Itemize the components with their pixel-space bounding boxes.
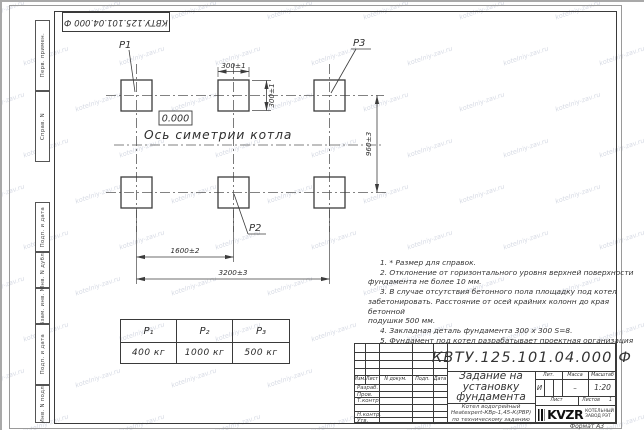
pad-label-p3: P3 [353,38,365,49]
title-block: Изм. Лист N докум. Подп. Дата Разраб. Пр… [354,343,616,423]
pad-label-p2: P2 [249,223,261,234]
tb-designation: КВТУ.125.101.04.000 Ф [447,344,617,371]
tb-sheets-value: 1 [604,396,617,405]
pad-label-p1: P1 [119,40,131,51]
note-line: подушки 500 мм. [368,316,638,326]
logo-subtext: КОТЕЛЬНЫЙ ЗАВОД РЭТ [585,410,614,420]
load-table: P₁ P₂ P₃ 400 кг 1000 кг 500 кг [120,319,290,364]
tb-doc-subtitle: Котел водогрейный Heatexpert-КВр-1,45-К(… [447,403,535,424]
dim-col-spacing: 1600±2 [171,246,200,255]
tb-scale-value: 1:20 [588,379,617,396]
symmetry-axis-label: Ось симетрии котла [144,128,292,142]
load-table-header: P₃ [233,320,289,343]
dim-row-spacing: 960±3 [364,131,373,156]
tb-row-prov: Пров. [357,392,373,398]
tb-row-razrab: Разраб. [357,385,378,391]
note-line: 2. Отклонение от горизонтального уровня … [368,268,638,278]
tb-lit-value: И [535,379,544,396]
elevation-value: 0.000 [162,114,189,125]
extension-lines [137,67,330,284]
note-line: 4. Закладная деталь фундамента 300 х 300… [368,326,638,336]
tb-mass-header: Масса [562,371,588,379]
note-line: 3. В случае отсутствия бетонного пола пл… [368,287,638,297]
logo-barcode-icon [538,409,545,421]
note-line: 1. * Размер для справок. [368,258,638,268]
tb-scale-header: Масштаб [588,371,617,379]
tb-col-ndokum: N докум. [379,375,412,384]
load-table-value: 500 кг [233,343,289,363]
dim-pad-height: 300±1 [267,83,276,107]
tb-row-tkontr: Т.контр. [357,398,380,404]
tb-col-podp: Подп. [412,375,433,384]
logo-text: KVZR [547,407,583,422]
tb-col-list: Лист [365,375,379,384]
tb-mass-value: – [562,379,588,396]
drawing-sheet: kotelniy-zav.rukotelniy-zav.rukotelniy-z… [0,0,644,430]
dim-total-width: 3200±3 [219,268,248,277]
tb-doc-title: Задание на установку фундамента [447,371,535,403]
tb-col-data: Дата [433,375,447,384]
logo-subtext-line: ЗАВОД РЭТ [585,415,614,420]
foundation-pads [121,80,345,208]
note-line: фундамента не более 10 мм. [368,277,638,287]
note-line: забетонировать. Расстояние от осей крайн… [368,297,638,316]
company-logo: KVZR КОТЕЛЬНЫЙ ЗАВОД РЭТ [536,406,616,423]
notes-block: 1. * Размер для справок. 2. Отклонение о… [368,258,638,355]
tb-sheets-label: Листов [578,396,604,405]
tb-lit-header: Лит. [535,371,562,379]
tb-row-utv: Утв. [357,418,368,424]
tb-row-nkontr: Н.контр. [357,412,381,418]
load-table-value: 400 кг [121,343,177,363]
load-table-header: P₁ [121,320,177,343]
format-label: Формат А3 [558,423,616,430]
tb-doc-title-line: фундамента [456,392,526,403]
tb-col-izm: Изм. [355,375,365,384]
load-table-value: 1000 кг [177,343,233,363]
load-table-header: P₂ [177,320,233,343]
dim-pad-width: 300±1 [221,61,245,70]
tb-sheet-label: Лист [535,396,578,405]
tb-doc-subtitle-line: по техническому заданию [452,417,530,423]
